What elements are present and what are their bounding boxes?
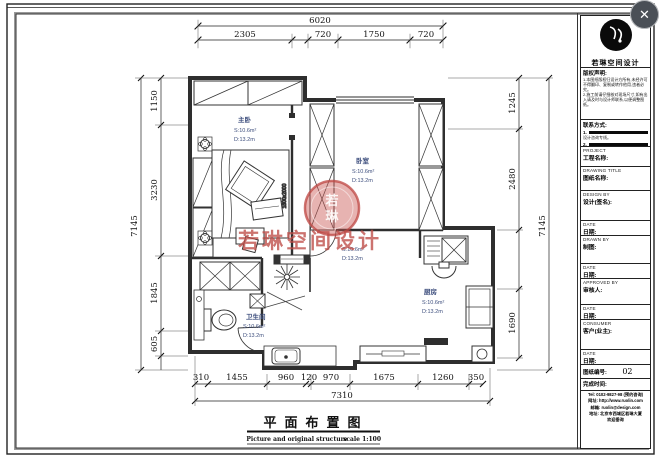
titleblock-row-date-1: DATE日期: [581, 221, 650, 236]
svg-text:D:13.2m: D:13.2m [422, 309, 443, 315]
room-label: 卫生间 S:10.6m² D:13.2m [243, 312, 266, 339]
svg-text:1245: 1245 [508, 92, 518, 114]
svg-text:310: 310 [193, 373, 209, 383]
titleblock-row-date-3: DATE日期: [581, 305, 650, 320]
floor-plan-canvas: 6020 2305 720 1750 720 7145 [0, 0, 660, 458]
svg-text:D:13.2m: D:13.2m [342, 256, 363, 262]
titleblock-row-date-4: DATE日期: [581, 350, 650, 365]
room-label: 主卧 S:10.6m² D:13.2m [234, 115, 256, 143]
copyright-item: 1.本图纸版权归设计方所有,未经许可不得翻印、复制或转作他用,违者必究。 [583, 77, 648, 92]
company-logo-icon [596, 17, 636, 53]
light-symbol [198, 137, 212, 151]
company-name: 若琳空间设计 [583, 58, 648, 68]
room-label: 卧室 S:10.6m² D:13.2m [352, 156, 374, 184]
dim-right: 1245 2480 1690 7145 [448, 75, 553, 373]
toilet [202, 309, 236, 331]
svg-text:720: 720 [315, 30, 331, 40]
dim-bottom-total: 7310 [331, 391, 353, 401]
hall-bench [274, 255, 310, 264]
sheet-number: 02 [607, 367, 648, 376]
dim-right-total: 7145 [538, 215, 548, 237]
svg-text:D:13.2m: D:13.2m [243, 333, 264, 339]
svg-text:2480: 2480 [508, 168, 518, 190]
dim-left-total: 7145 [130, 215, 140, 237]
titleblock-row-design-by: DESIGN BY设计(签名): [581, 191, 650, 221]
side-table [424, 338, 448, 345]
svg-text:350: 350 [468, 373, 484, 383]
titleblock-row-consumer: CONSUMER客户(业主): [581, 320, 650, 350]
links-heading: 联系方式: [583, 121, 648, 129]
watermark-text: 若琳空间设计 [237, 229, 382, 253]
drawing-title: 平面布置图 [263, 415, 368, 430]
svg-text:厨房: 厨房 [424, 287, 438, 296]
svg-text:D:13.2m: D:13.2m [352, 178, 373, 184]
door-arc [238, 327, 262, 352]
svg-text:1675: 1675 [373, 373, 395, 383]
svg-text:1455: 1455 [226, 373, 248, 383]
copyright-heading: 版权声明: [583, 69, 648, 77]
svg-text:若: 若 [324, 193, 338, 208]
dim-left: 7145 1150 3230 1845 605 [130, 75, 188, 373]
svg-text:3230: 3230 [150, 179, 160, 201]
titleblock-row-drawn-by: DRAWN BY制图: [581, 236, 650, 264]
contact-line: 欢迎垂询 [583, 417, 648, 423]
stool [472, 346, 493, 362]
dim-top-total: 6020 [309, 16, 331, 26]
drawing-title-block: 平面布置图 Picture and original structure sca… [246, 415, 381, 444]
title-block: 若琳空间设计 版权声明: 1.本图纸版权归设计方所有,未经许可不得翻印、复制或转… [580, 15, 651, 449]
room-kitchen: 厨房 S:10.6m² D:13.2m [422, 236, 493, 328]
svg-text:2305: 2305 [234, 30, 256, 40]
window [336, 95, 414, 105]
fan-symbol [274, 264, 300, 290]
svg-text:1750: 1750 [363, 30, 385, 40]
drawing-subtitle: Picture and original structure [246, 436, 347, 443]
contact-line: 网址: http://www.ruolin.com [583, 398, 648, 404]
svg-text:720: 720 [418, 30, 434, 40]
light-symbol [198, 231, 212, 245]
copyright-section: 版权声明: 1.本图纸版权归设计方所有,未经许可不得翻印、复制或转作他用,违者必… [581, 68, 650, 120]
svg-text:960: 960 [278, 373, 294, 383]
svg-text:主卧: 主卧 [238, 115, 252, 124]
svg-text:S:10.6m²: S:10.6m² [234, 128, 256, 134]
close-button[interactable]: ✕ [630, 0, 659, 29]
titleblock-row-sheet-number: 图纸编号: 02 [581, 365, 650, 379]
drawing-sheet: 6020 2305 720 1750 720 7145 [0, 0, 660, 458]
svg-text:S:10.6m²: S:10.6m² [422, 300, 444, 306]
titleblock-divider [577, 13, 578, 449]
link-note: 设计咨询专线。 [583, 135, 648, 141]
svg-text:D:13.2m: D:13.2m [234, 137, 255, 143]
svg-text:1150: 1150 [150, 90, 160, 112]
dim-top: 6020 2305 720 1750 720 [195, 16, 446, 48]
contact-links-section: 联系方式: 1. 设计咨询专线。 2. [581, 120, 650, 147]
bed-size-label: 1800x2000 [282, 183, 288, 208]
svg-text:卫生间: 卫生间 [246, 312, 266, 321]
drawing-scale: scale 1:100 [343, 436, 381, 443]
close-icon: ✕ [639, 7, 650, 23]
vanity [194, 290, 204, 340]
svg-text:970: 970 [323, 373, 339, 383]
copyright-item: 2.施工前请仔细核对现场尺寸,如有出入请及时与设计师联系,以便调整图纸。 [583, 92, 648, 107]
titleblock-row-project: PROJECT工程名称: [581, 147, 650, 167]
svg-text:605: 605 [150, 336, 160, 352]
titleblock-row-approved-by: APPROVED BY审核人: [581, 279, 650, 305]
titleblock-row-drawing-title: DRAWING TITLE图纸名称: [581, 167, 650, 191]
titleblock-row-date-2: DATE日期: [581, 264, 650, 279]
svg-text:S:10.6m²: S:10.6m² [352, 169, 374, 175]
svg-text:1260: 1260 [432, 373, 454, 383]
svg-text:1845: 1845 [150, 282, 160, 304]
fridge [466, 286, 493, 328]
titleblock-row-finish-date: 完成时间: [581, 379, 650, 391]
room-label: 厨房 S:10.6m² D:13.2m [422, 287, 444, 315]
contact-line: 邮箱: ruolin@design.com [583, 405, 648, 411]
svg-text:120: 120 [301, 373, 317, 383]
svg-text:卧室: 卧室 [356, 156, 370, 165]
titleblock-footer-contact: Tel: 0102-9827-98 (预约咨询) 网址: http://www.… [581, 391, 650, 448]
svg-text:1690: 1690 [508, 312, 518, 334]
svg-text:S:10.6m²: S:10.6m² [243, 324, 265, 330]
tv-bench [360, 346, 426, 362]
bed [212, 150, 289, 238]
svg-text:琳: 琳 [325, 209, 339, 224]
washbasin [264, 346, 336, 366]
stove-station [424, 236, 468, 278]
